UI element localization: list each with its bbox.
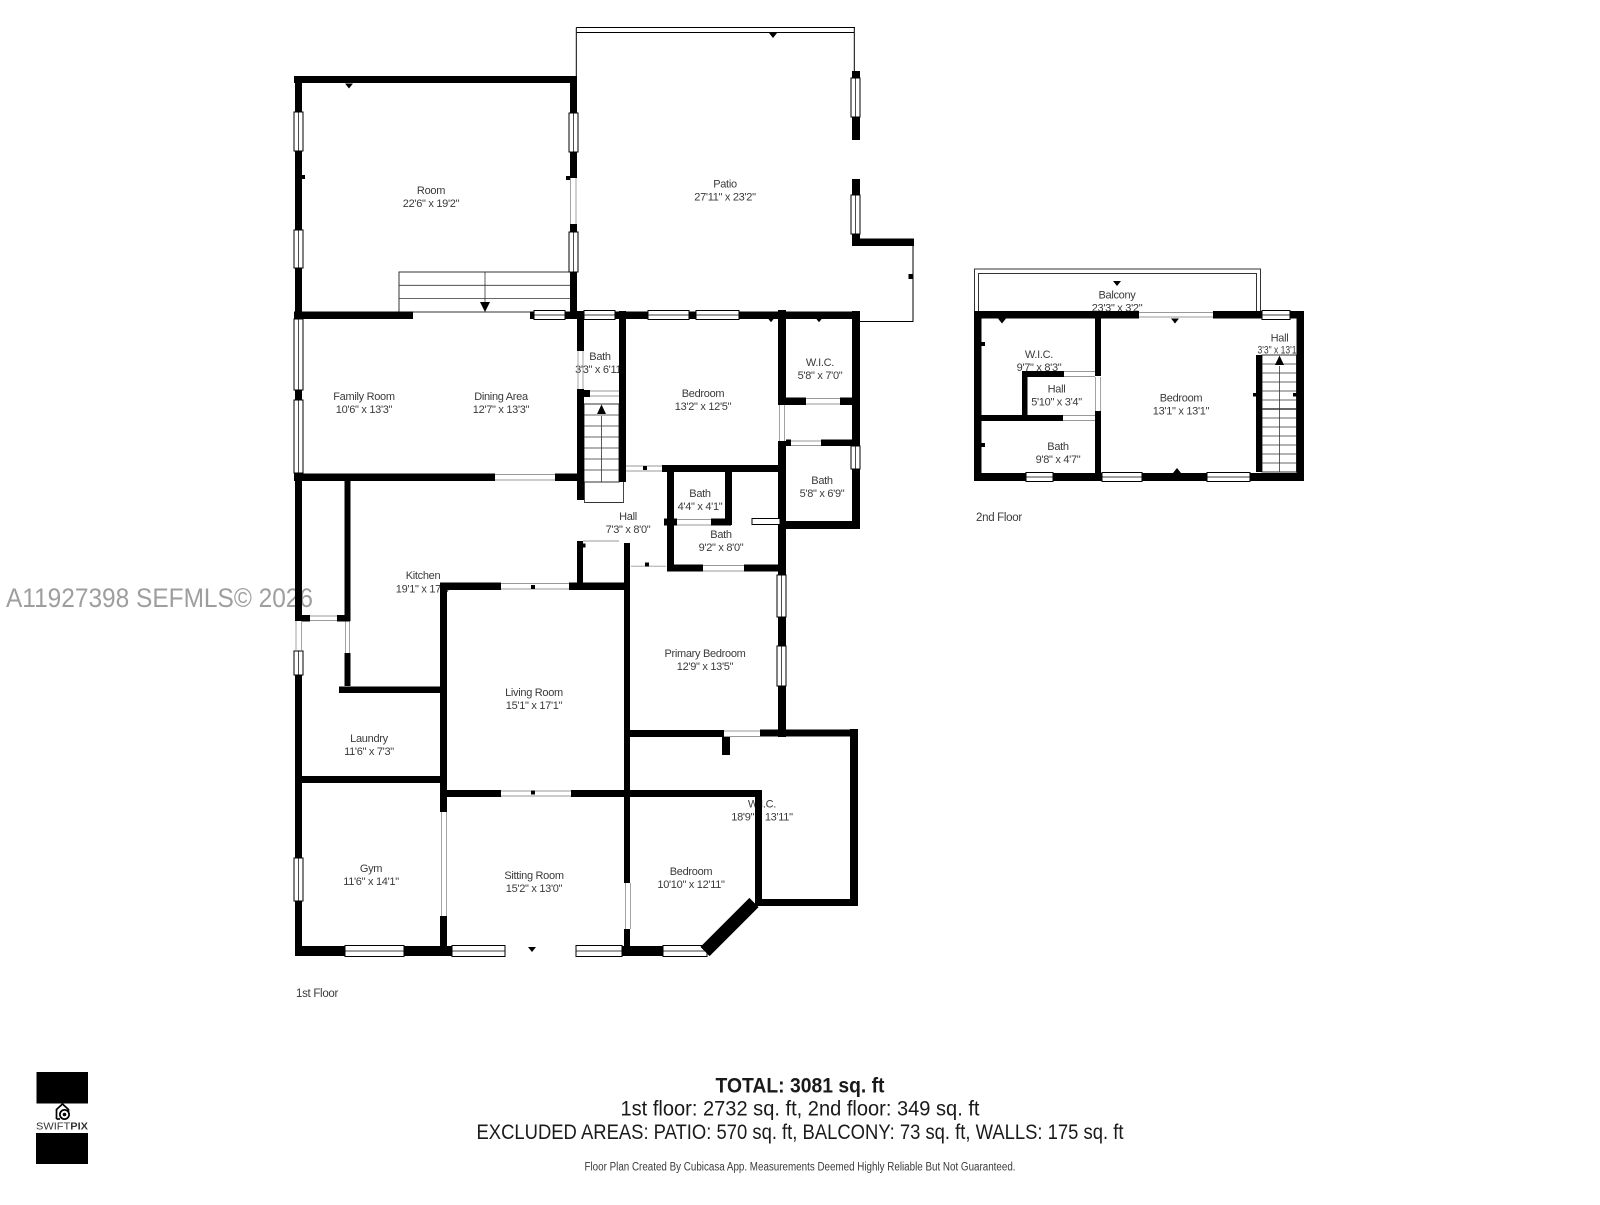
svg-text:13'2" x 12'5": 13'2" x 12'5" bbox=[675, 401, 732, 413]
svg-text:5'10" x 3'4": 5'10" x 3'4" bbox=[1031, 397, 1082, 409]
svg-text:15'2" x 13'0": 15'2" x 13'0" bbox=[506, 883, 563, 895]
svg-text:Laundry: Laundry bbox=[350, 733, 388, 745]
svg-text:13'1" x 13'1": 13'1" x 13'1" bbox=[1153, 406, 1210, 418]
svg-text:9'8" x 4'7": 9'8" x 4'7" bbox=[1036, 454, 1081, 466]
svg-text:5'8" x 7'0": 5'8" x 7'0" bbox=[798, 370, 843, 382]
svg-text:5'8" x 6'9": 5'8" x 6'9" bbox=[800, 488, 845, 500]
svg-text:W.I.C.: W.I.C. bbox=[748, 799, 776, 811]
svg-text:Sitting Room: Sitting Room bbox=[504, 870, 564, 882]
svg-text:Bath: Bath bbox=[1047, 441, 1069, 453]
svg-text:12'9" x 13'5": 12'9" x 13'5" bbox=[677, 661, 734, 673]
svg-text:7'3" x 8'0": 7'3" x 8'0" bbox=[606, 524, 651, 536]
svg-text:W.I.C.: W.I.C. bbox=[806, 357, 834, 369]
svg-text:15'1" x 17'1": 15'1" x 17'1" bbox=[506, 700, 563, 712]
svg-text:Bedroom: Bedroom bbox=[1160, 393, 1203, 405]
svg-text:Hall: Hall bbox=[619, 511, 637, 523]
svg-text:4'4" x 4'1": 4'4" x 4'1" bbox=[678, 501, 723, 513]
svg-text:11'6" x 7'3": 11'6" x 7'3" bbox=[344, 746, 394, 758]
svg-text:Family Room: Family Room bbox=[333, 391, 395, 403]
svg-text:Bath: Bath bbox=[710, 529, 732, 541]
svg-text:TOTAL: 3081 sq. ft: TOTAL: 3081 sq. ft bbox=[716, 1074, 885, 1098]
svg-text:EXCLUDED AREAS: PATIO: 570 sq.: EXCLUDED AREAS: PATIO: 570 sq. ft, BALCO… bbox=[477, 1120, 1124, 1144]
svg-text:W.I.C.: W.I.C. bbox=[1025, 349, 1053, 361]
svg-text:Bath: Bath bbox=[589, 351, 611, 363]
svg-text:18'9" x 13'11": 18'9" x 13'11" bbox=[731, 812, 793, 824]
svg-text:Hall: Hall bbox=[1271, 333, 1289, 345]
svg-text:Patio: Patio bbox=[713, 179, 737, 191]
svg-text:Bath: Bath bbox=[811, 475, 833, 487]
svg-text:Kitchen: Kitchen bbox=[406, 570, 441, 582]
svg-text:1st Floor: 1st Floor bbox=[296, 988, 339, 1000]
svg-text:SWIFTPIX: SWIFTPIX bbox=[36, 1122, 88, 1133]
svg-text:2nd Floor: 2nd Floor bbox=[976, 512, 1022, 524]
svg-text:9'2" x 8'0": 9'2" x 8'0" bbox=[699, 542, 744, 554]
svg-text:Dining Area: Dining Area bbox=[474, 391, 529, 403]
svg-text:27'11" x 23'2": 27'11" x 23'2" bbox=[694, 192, 756, 204]
svg-text:Room: Room bbox=[417, 185, 445, 197]
svg-text:1st floor: 2732 sq. ft, 2nd fl: 1st floor: 2732 sq. ft, 2nd floor: 349 s… bbox=[621, 1097, 980, 1121]
svg-text:10'10" x 12'11": 10'10" x 12'11" bbox=[657, 879, 725, 891]
svg-text:Floor Plan Created By Cubicasa: Floor Plan Created By Cubicasa App. Meas… bbox=[585, 1162, 1016, 1174]
svg-text:Bedroom: Bedroom bbox=[682, 388, 725, 400]
svg-text:Bath: Bath bbox=[689, 488, 711, 500]
svg-text:Balcony: Balcony bbox=[1098, 290, 1136, 302]
svg-text:A11927398 SEFMLS© 2026: A11927398 SEFMLS© 2026 bbox=[6, 583, 313, 613]
svg-text:Primary Bedroom: Primary Bedroom bbox=[664, 648, 745, 660]
svg-text:Hall: Hall bbox=[1048, 384, 1066, 396]
svg-text:10'6" x 13'3": 10'6" x 13'3" bbox=[336, 404, 393, 416]
svg-text:11'6" x 14'1": 11'6" x 14'1" bbox=[343, 876, 399, 888]
svg-text:12'7" x 13'3": 12'7" x 13'3" bbox=[473, 404, 530, 416]
svg-text:22'6" x 19'2": 22'6" x 19'2" bbox=[403, 198, 460, 210]
svg-text:Living Room: Living Room bbox=[505, 687, 563, 699]
svg-text:Gym: Gym bbox=[360, 863, 382, 875]
svg-text:Bedroom: Bedroom bbox=[670, 866, 713, 878]
